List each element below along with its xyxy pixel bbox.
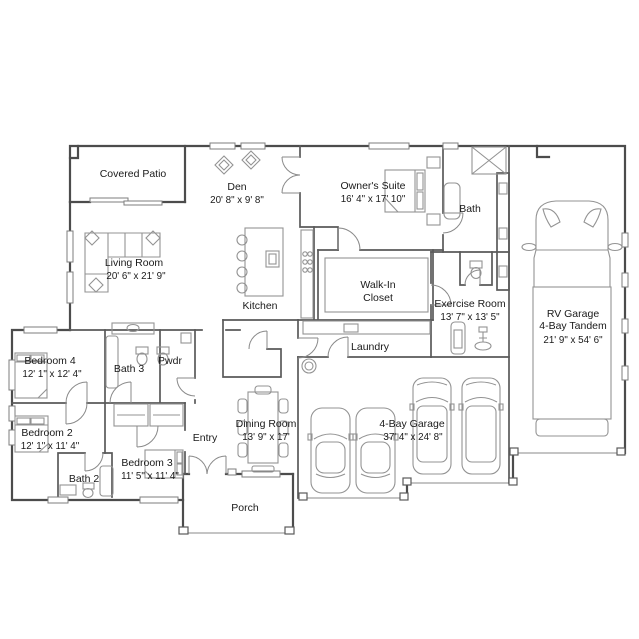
toilet-icon: [470, 261, 482, 279]
kitchen-island-icon: [237, 228, 283, 296]
room-label-pwdr: Pwdr: [158, 355, 182, 367]
treadmill-icon: [451, 322, 465, 354]
cooktop-icon: [301, 230, 313, 318]
room-label-den: Den: [227, 181, 246, 193]
room-label-laundry: Laundry: [351, 341, 390, 353]
room-label-walk-in-closet-2: Closet: [363, 292, 393, 304]
room-label-rv-garage-1: RV Garage: [547, 308, 599, 320]
bath3-fixtures: [106, 323, 154, 388]
room-label-bedroom-4: Bedroom 4: [24, 355, 76, 367]
room-dims-den: 20' 8" x 9' 8": [210, 195, 264, 206]
exercise-bike-icon: [475, 327, 491, 350]
room-dims-exercise-room: 13' 7" x 13' 5": [440, 312, 500, 323]
room-label-bedroom-3: Bedroom 3: [121, 457, 173, 469]
room-label-exercise-room: Exercise Room: [434, 298, 505, 310]
room-dims-4-bay-garage: 37' 4" x 24' 8": [383, 432, 443, 443]
room-label-rv-garage-2: 4-Bay Tandem: [539, 320, 607, 332]
room-label-bath-3: Bath 3: [114, 363, 145, 375]
bathtub-icon: [444, 183, 460, 219]
room-label-covered-patio: Covered Patio: [100, 168, 167, 180]
shower-icon: [472, 147, 506, 174]
room-label-4-bay-garage: 4-Bay Garage: [379, 418, 445, 430]
room-dims-bedroom-3: 11' 5" x 11' 4": [121, 471, 179, 482]
room-label-bath: Bath: [459, 203, 481, 215]
room-label-walk-in-closet-1: Walk-In: [360, 279, 395, 291]
room-label-entry: Entry: [193, 432, 218, 444]
den-chair-icon: [215, 151, 260, 174]
structural-posts: [179, 448, 625, 534]
hall-closets: [114, 404, 183, 426]
room-label-bath-2: Bath 2: [69, 473, 100, 485]
room-label-kitchen: Kitchen: [242, 300, 277, 312]
room-dims-rv-garage: 21' 9" x 54' 6": [543, 335, 603, 346]
room-dims-living-room: 20' 6" x 21' 9": [106, 271, 166, 282]
room-dims-bedroom-4: 12' 1" x 12' 4": [22, 369, 82, 380]
room-label-living-room: Living Room: [105, 257, 164, 269]
car-icon: [308, 408, 353, 493]
floor-plan: Covered Patio Den 20' 8" x 9' 8" Owner's…: [0, 0, 639, 639]
water-heater-icon: [302, 359, 316, 373]
room-label-porch: Porch: [231, 502, 259, 514]
room-label-bedroom-2: Bedroom 2: [21, 427, 73, 439]
suv-icon: [459, 378, 503, 474]
laundry-counter: [303, 321, 430, 334]
room-label-dining-room: Dining Room: [236, 418, 297, 430]
room-dims-bedroom-2: 12' 1" x 11' 4": [21, 441, 80, 452]
room-label-owners-suite: Owner's Suite: [340, 180, 405, 192]
room-dims-dining-room: 13' 9" x 17': [242, 432, 290, 443]
room-labels: Covered Patio Den 20' 8" x 9' 8" Owner's…: [21, 168, 607, 514]
floor-plan-drawing: Covered Patio Den 20' 8" x 9' 8" Owner's…: [0, 0, 639, 639]
windows: [9, 143, 628, 503]
room-dims-owners-suite: 16' 4" x 17' 10": [341, 194, 406, 205]
linen-cabinet: [499, 183, 507, 277]
